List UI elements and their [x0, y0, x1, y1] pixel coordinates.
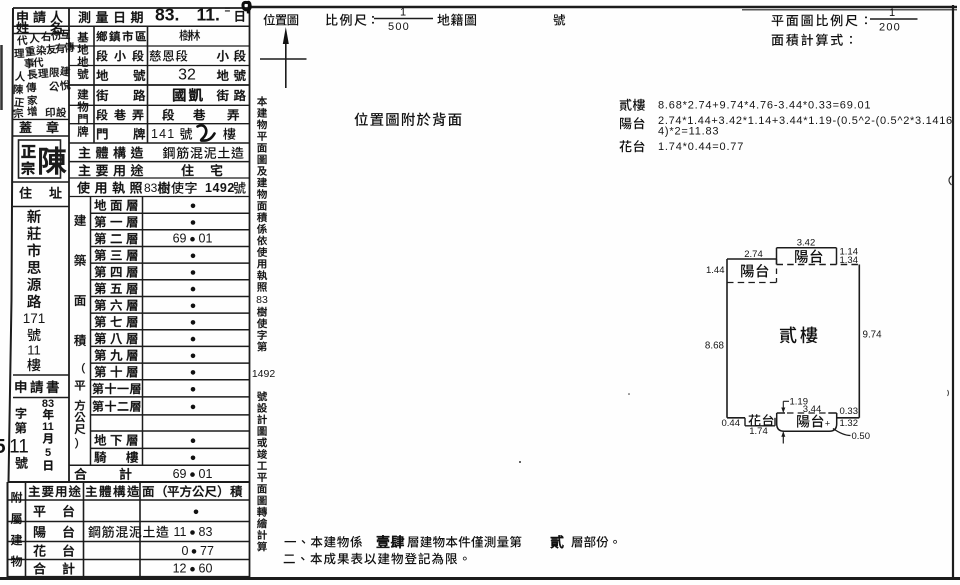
svg-text:11: 11 — [27, 343, 41, 358]
svg-text:200: 200 — [879, 22, 901, 34]
svg-text:171: 171 — [23, 311, 46, 326]
svg-text:83: 83 — [42, 398, 54, 410]
svg-text:1: 1 — [889, 7, 895, 19]
svg-text:=: = — [225, 5, 231, 16]
svg-text:2.74: 2.74 — [744, 249, 763, 260]
svg-text:11: 11 — [9, 436, 29, 457]
svg-text:32: 32 — [178, 66, 196, 83]
svg-text:11.: 11. — [197, 5, 220, 25]
svg-text:8.68: 8.68 — [705, 341, 725, 352]
svg-text:11: 11 — [42, 421, 54, 433]
svg-text:5: 5 — [45, 447, 51, 459]
svg-text:1.34: 1.34 — [840, 255, 859, 266]
svg-text:0.33: 0.33 — [840, 406, 859, 417]
svg-text:83: 83 — [144, 181, 158, 195]
svg-text:83: 83 — [199, 525, 213, 539]
svg-text:5: 5 — [0, 436, 6, 458]
svg-text:83: 83 — [256, 294, 268, 306]
svg-text:3.42: 3.42 — [797, 238, 816, 249]
svg-text:11: 11 — [174, 525, 187, 539]
svg-text:01: 01 — [199, 232, 213, 246]
svg-text:77: 77 — [200, 544, 214, 558]
svg-text:1492: 1492 — [205, 181, 235, 195]
svg-text:+: + — [825, 419, 830, 429]
svg-text:0: 0 — [182, 544, 189, 558]
svg-text:1: 1 — [400, 7, 406, 19]
svg-text:1.74: 1.74 — [749, 426, 768, 437]
svg-text:69: 69 — [173, 467, 187, 481]
svg-text:60: 60 — [199, 562, 213, 576]
svg-text:141: 141 — [151, 127, 175, 141]
svg-text:3.44: 3.44 — [803, 404, 822, 415]
svg-text:0.44: 0.44 — [722, 418, 741, 429]
svg-text:12: 12 — [173, 562, 187, 576]
svg-text:0.50: 0.50 — [852, 431, 871, 442]
svg-text:1.74*0.44=0.77: 1.74*0.44=0.77 — [658, 141, 744, 153]
svg-text:4)*2=11.83: 4)*2=11.83 — [658, 126, 719, 138]
svg-text:1.32: 1.32 — [840, 418, 859, 429]
svg-text:8.68*2.74+9.74*4.76-3.44*0.33=: 8.68*2.74+9.74*4.76-3.44*0.33=69.01 — [658, 100, 871, 112]
svg-text:500: 500 — [388, 21, 410, 33]
svg-text:01: 01 — [199, 467, 213, 481]
svg-text:83.: 83. — [155, 5, 179, 25]
svg-text:1492: 1492 — [252, 368, 276, 380]
svg-text:9.74: 9.74 — [863, 330, 883, 341]
svg-text:1.44: 1.44 — [706, 265, 725, 276]
svg-text:69: 69 — [173, 232, 187, 246]
